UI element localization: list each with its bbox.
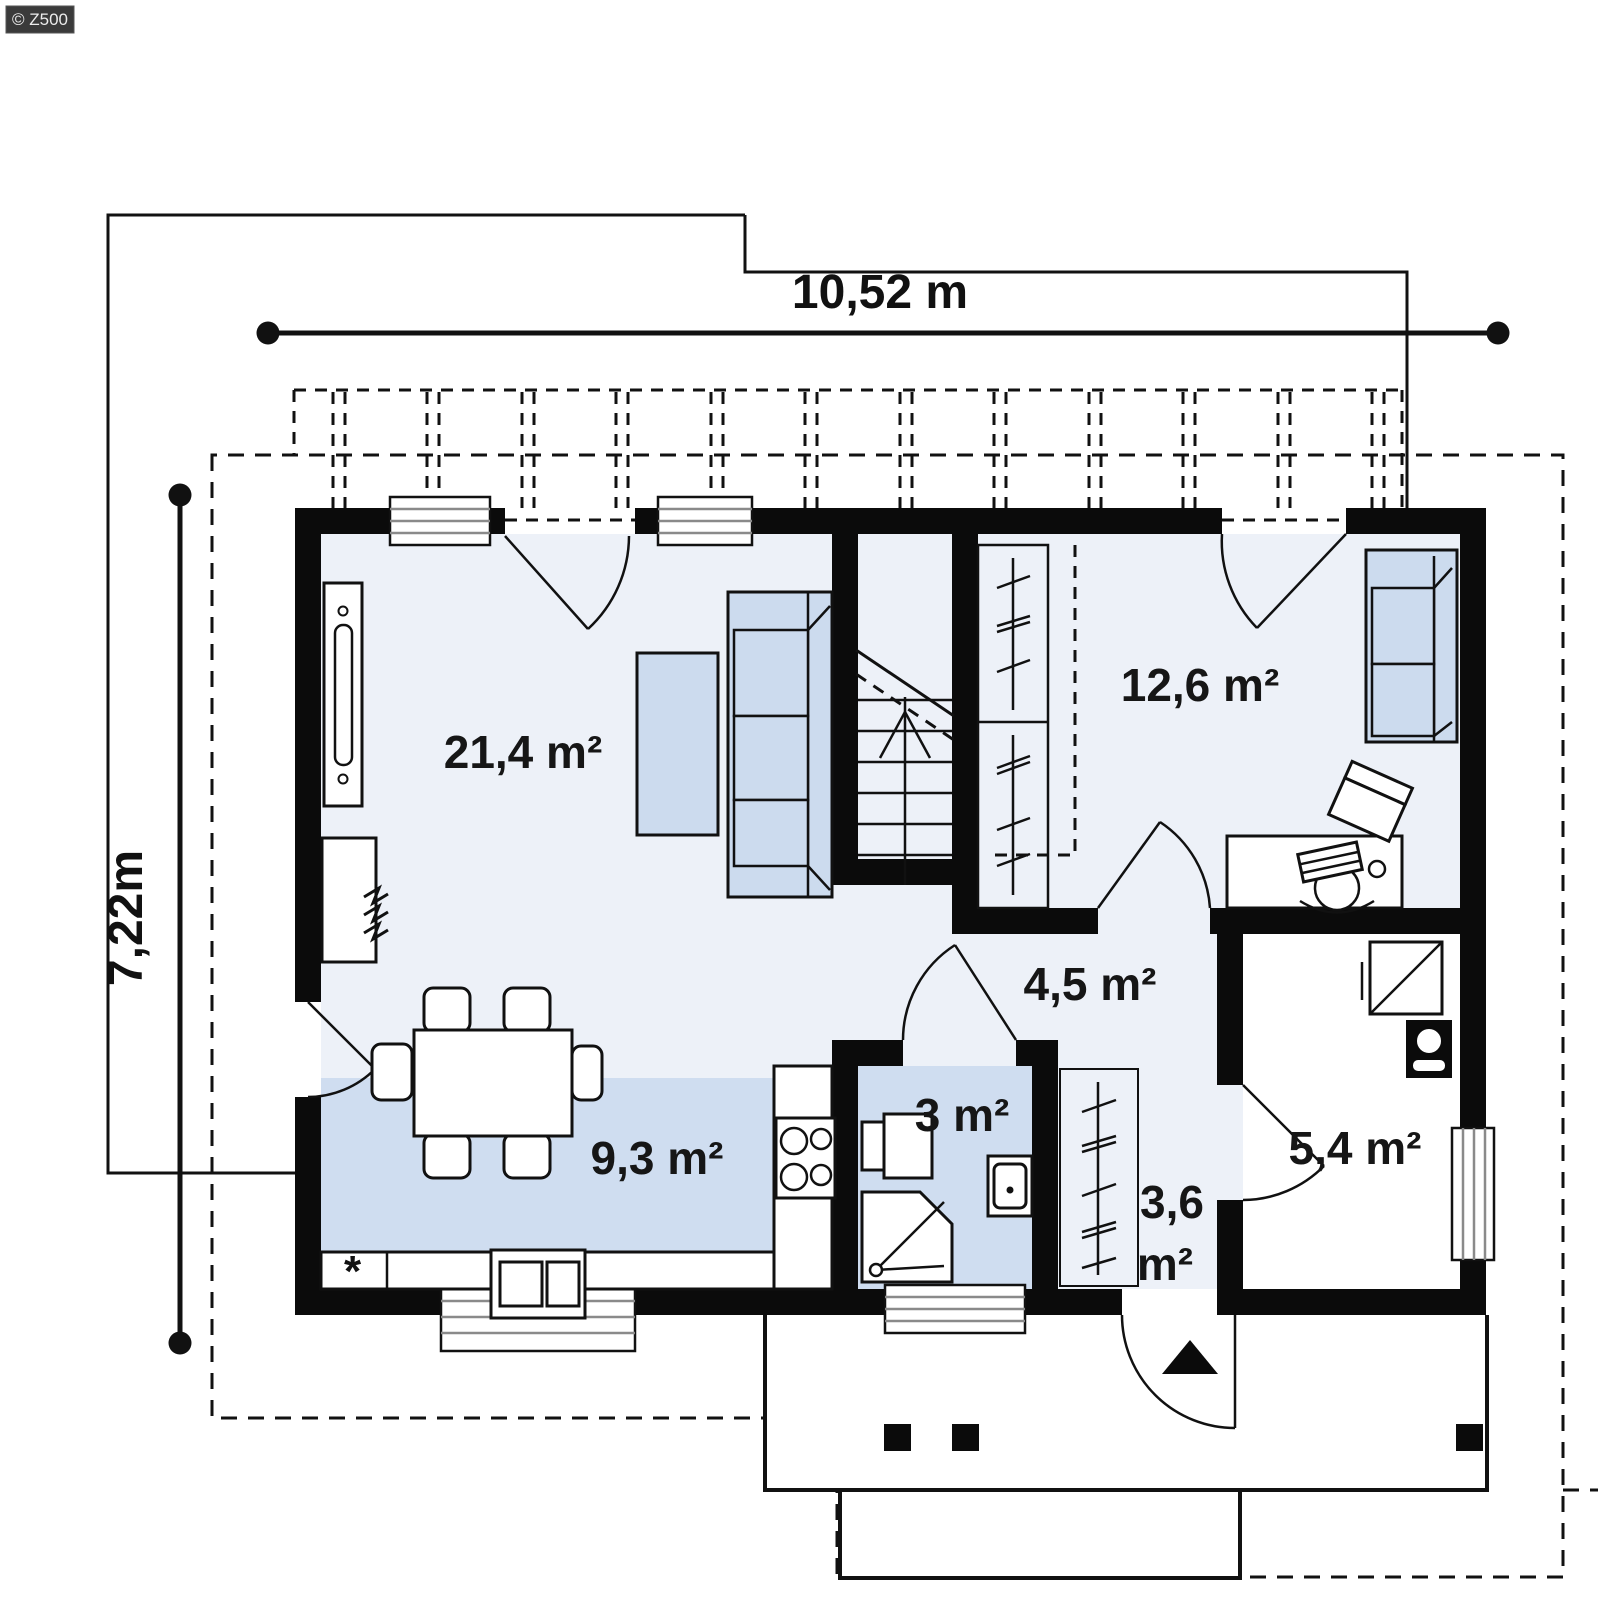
room-label-kitchen: 9,3 m² (591, 1132, 724, 1184)
washing-machine (1406, 1020, 1452, 1078)
dining-chair (424, 988, 470, 1032)
fridge-mark: * (344, 1247, 362, 1296)
window-living (390, 497, 490, 545)
dimension-dot (169, 1332, 192, 1355)
dimension-left: 7,22m (100, 484, 192, 1355)
dining-table (414, 1030, 572, 1136)
coffee-table (637, 653, 718, 835)
room-label-living: 21,4 m² (444, 726, 603, 778)
mouse (1369, 861, 1385, 877)
window-living-2 (658, 497, 752, 545)
room-label-wardrobe-line1: 3,6 (1140, 1176, 1204, 1228)
dimension-dot (1487, 322, 1510, 345)
porch (765, 1315, 1487, 1578)
dimension-dot (257, 322, 280, 345)
dimension-top: 10,52 m (257, 266, 1510, 345)
sofa (728, 592, 832, 897)
dining-chair (424, 1134, 470, 1178)
room-label-bedroom: 12,6 m² (1121, 659, 1280, 711)
room-label-bathroom: 3 m² (915, 1089, 1010, 1141)
dining-chair (372, 1044, 412, 1100)
closet (1060, 1069, 1138, 1286)
watermark-label: © Z500 (12, 10, 68, 29)
room-label-wardrobe-line2: m² (1137, 1238, 1193, 1290)
water-heater (1362, 942, 1442, 1014)
porch-post (1456, 1424, 1483, 1451)
kitchen-sink (491, 1250, 585, 1318)
sideboard (322, 838, 376, 962)
watermark: © Z500 (6, 6, 74, 33)
window-bathroom (885, 1285, 1025, 1333)
porch-post (884, 1424, 911, 1451)
couch (1366, 550, 1457, 742)
dining-chair (572, 1046, 602, 1100)
dimension-top-label: 10,52 m (792, 266, 968, 319)
porch-post (952, 1424, 979, 1451)
tv-unit (324, 583, 362, 806)
dimension-dot (169, 484, 192, 507)
dimension-left-label: 7,22m (100, 850, 153, 986)
washbasin (988, 1156, 1032, 1216)
room-label-hall: 4,5 m² (1024, 958, 1157, 1010)
room-label-utility: 5,4 m² (1289, 1122, 1422, 1174)
window-utility (1452, 1128, 1494, 1260)
stove (776, 1118, 835, 1198)
dining-chair (504, 988, 550, 1032)
floor-plan-drawing: 10,52 m 7,22m (0, 0, 1600, 1600)
floor-plan-page: 10,52 m 7,22m (0, 0, 1600, 1600)
dining-chair (504, 1134, 550, 1178)
radiator-icon (364, 888, 388, 939)
entrance-step (840, 1490, 1240, 1578)
pergola-beams (294, 390, 1402, 508)
